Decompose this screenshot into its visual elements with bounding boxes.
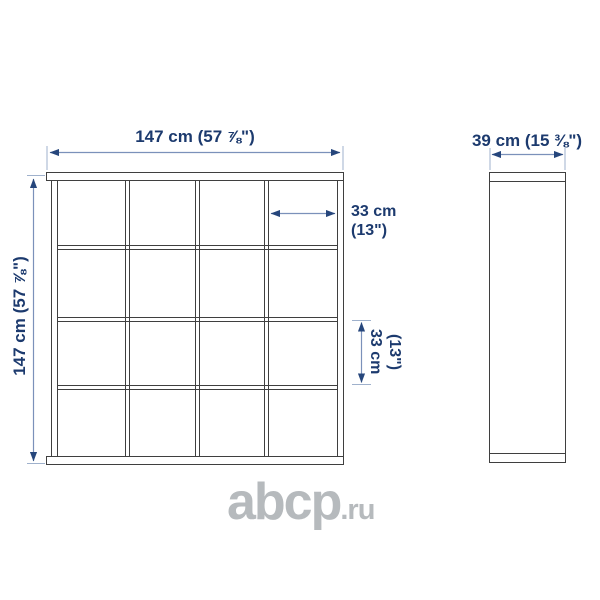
cell-height-dimension-label: 33 cm (13") <box>366 315 404 389</box>
watermark-suffix: .ru <box>340 494 374 527</box>
front-right-plank <box>338 181 344 457</box>
front-horizontal-dividers <box>58 246 338 390</box>
cell-width-dimension-line2: (13") <box>351 221 396 240</box>
cell-height-dimension-line1: 33 cm <box>366 315 385 389</box>
front-height-dimension-label: 147 cm (57 ⅞") <box>10 256 30 376</box>
front-view-shelf <box>47 173 344 465</box>
side-panel-outline <box>490 173 566 463</box>
side-depth-dimension-label: 39 cm (15 ⅜") <box>447 131 600 151</box>
cell-width-dimension-line1: 33 cm <box>351 202 396 221</box>
front-left-plank <box>52 181 58 457</box>
front-width-dimension-label: 147 cm (57 ⅞") <box>75 127 315 147</box>
front-bottom-plank <box>47 457 344 465</box>
front-top-plank <box>47 173 344 181</box>
product-dimension-image: 147 cm (57 ⅞") 147 cm (57 ⅞") 33 cm (13"… <box>0 0 600 600</box>
extension-lines <box>27 146 565 464</box>
front-vertical-dividers <box>126 181 269 457</box>
watermark-text: abcp <box>227 476 340 528</box>
dimension-arrows <box>34 153 564 462</box>
cell-height-dimension-line2: (13") <box>385 315 404 389</box>
front-height-dimension-wrap: 147 cm (57 ⅞") <box>2 170 38 462</box>
cell-width-dimension-label: 33 cm (13") <box>351 202 396 240</box>
side-view-shelf <box>490 173 566 463</box>
watermark-logo: abcp.ru <box>227 476 374 528</box>
